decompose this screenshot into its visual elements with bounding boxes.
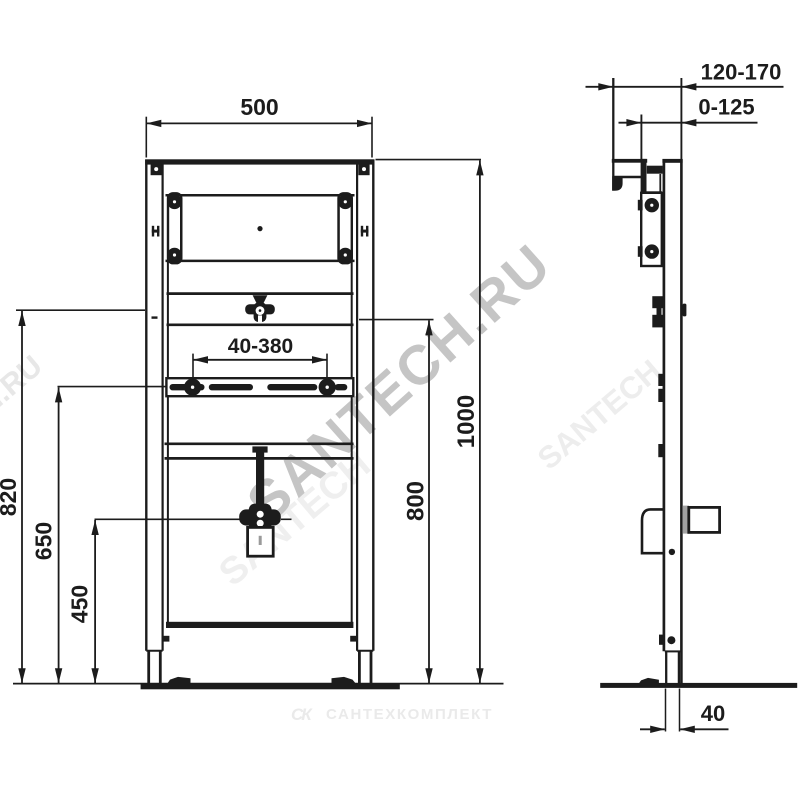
svg-text:0-125: 0-125 (698, 95, 754, 120)
svg-text:800: 800 (403, 481, 430, 521)
svg-text:650: 650 (31, 522, 57, 560)
svg-text:820: 820 (0, 478, 21, 516)
svg-text:450: 450 (67, 585, 93, 623)
svg-text:500: 500 (240, 94, 278, 120)
svg-text:40: 40 (701, 701, 725, 726)
svg-text:1000: 1000 (453, 395, 480, 448)
svg-text:120-170: 120-170 (701, 60, 782, 85)
svg-text:40-380: 40-380 (228, 335, 293, 358)
svg-text:САНТЕХКОМПЛЕКТ: САНТЕХКОМПЛЕКТ (326, 706, 493, 723)
